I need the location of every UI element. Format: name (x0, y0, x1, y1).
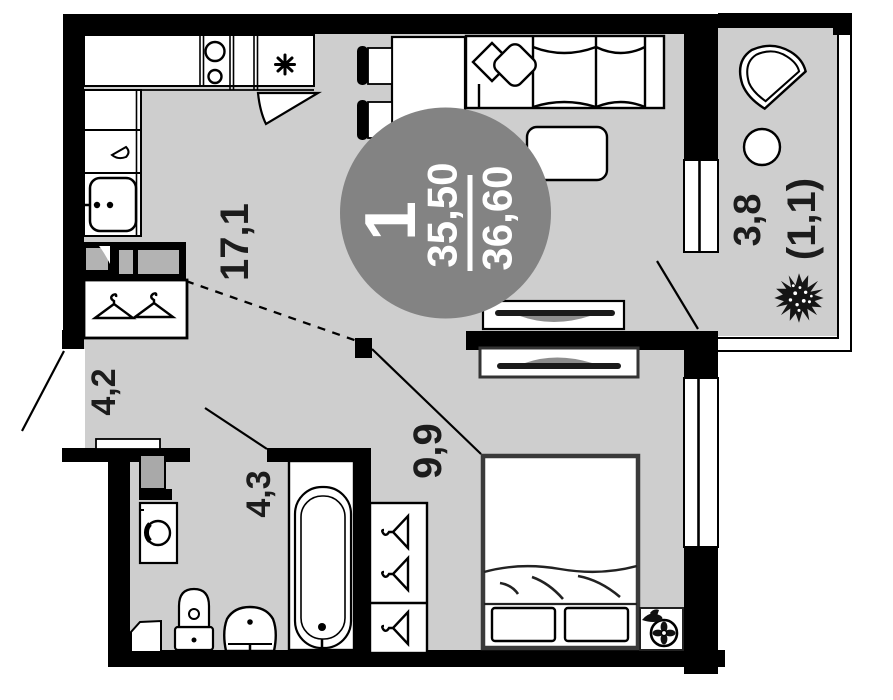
svg-text:17,1: 17,1 (213, 203, 257, 281)
svg-text:9,9: 9,9 (406, 423, 450, 479)
svg-text:35,50: 35,50 (419, 162, 466, 267)
svg-text:36,60: 36,60 (474, 165, 521, 270)
svg-text:3,8: 3,8 (727, 194, 769, 247)
svg-text:4,3: 4,3 (240, 470, 278, 517)
svg-text:(1,1): (1,1) (780, 178, 824, 260)
svg-text:4,2: 4,2 (85, 368, 123, 415)
